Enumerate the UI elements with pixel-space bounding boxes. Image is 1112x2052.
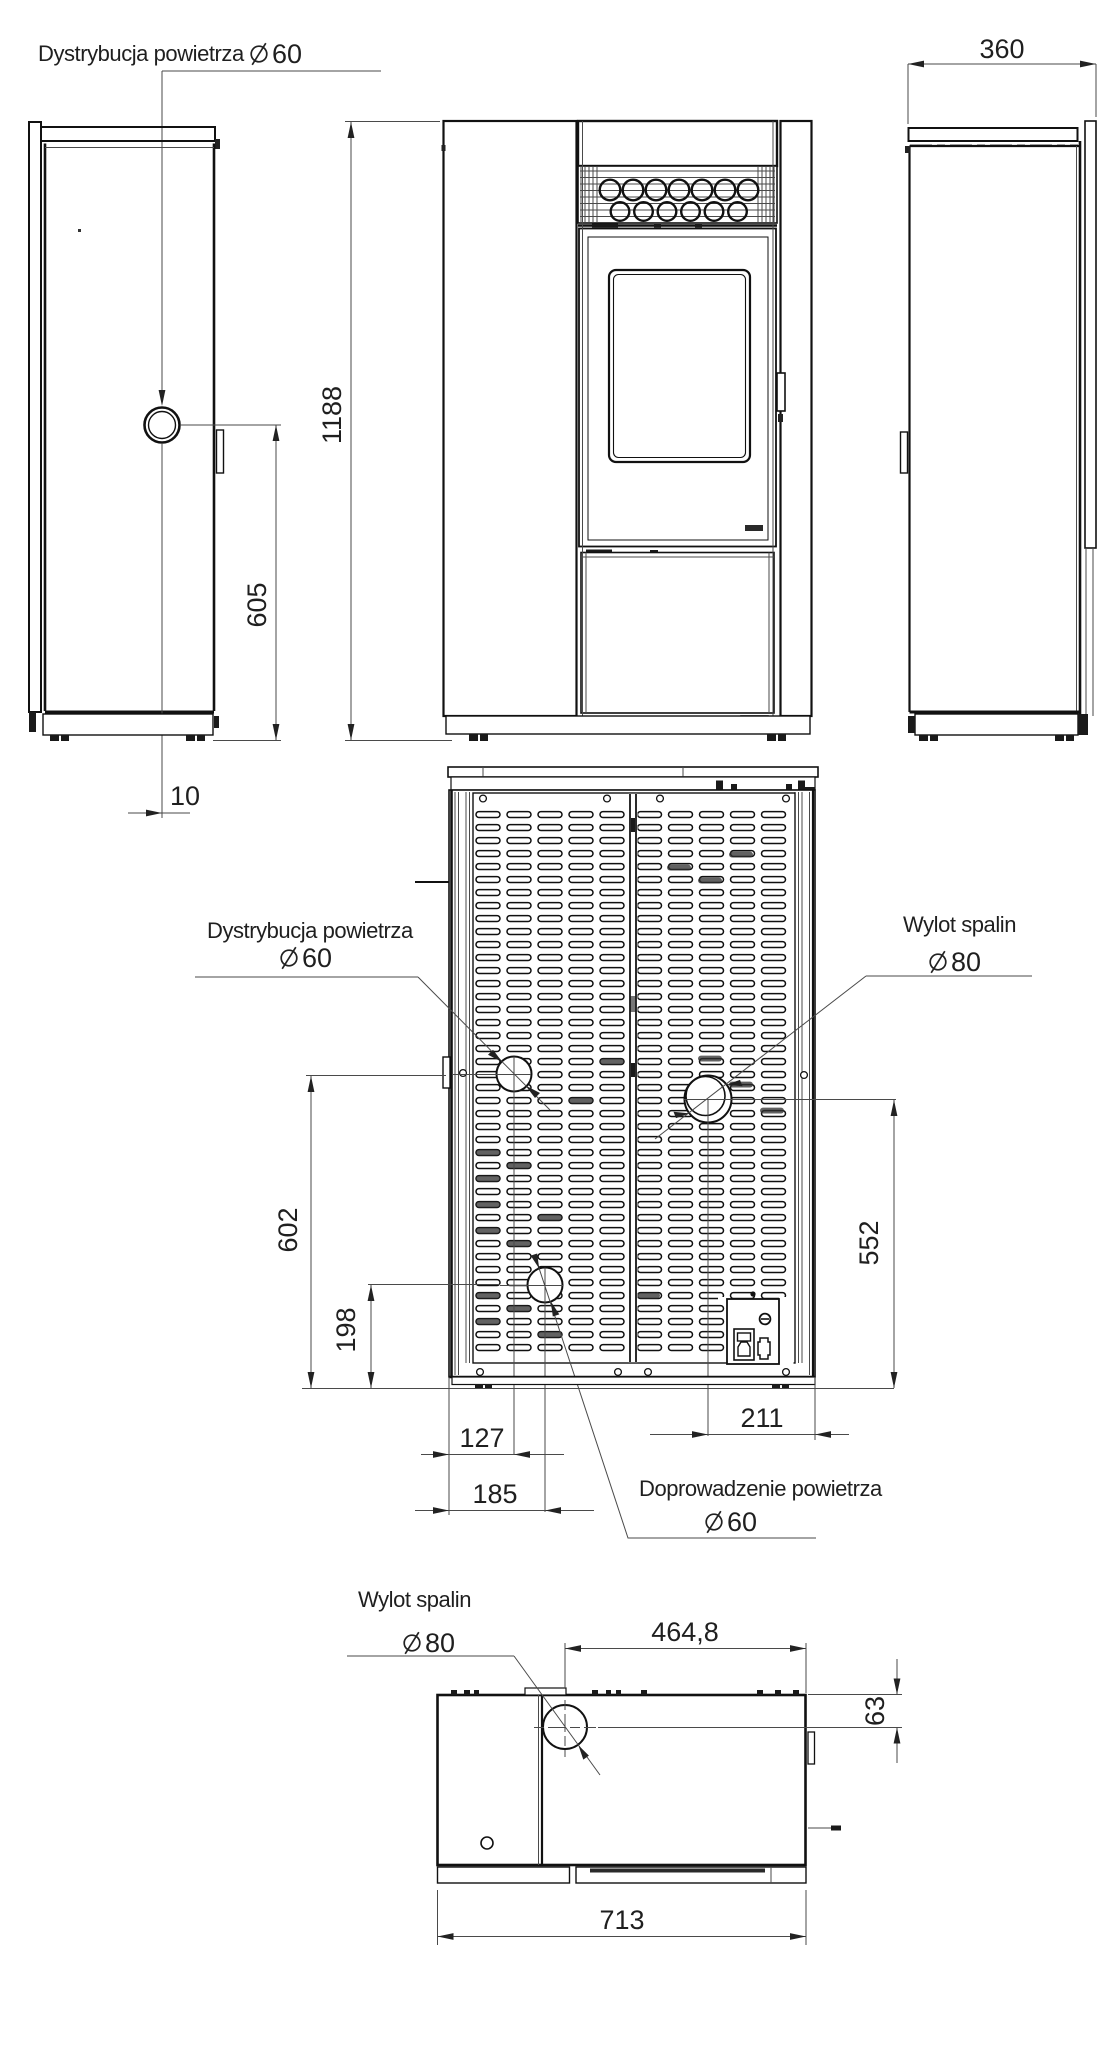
svg-text:464,8: 464,8	[651, 1617, 719, 1647]
svg-text:Dystrybucja powietrza: Dystrybucja powietrza	[38, 41, 245, 66]
svg-text:80: 80	[951, 947, 981, 977]
svg-text:10: 10	[170, 781, 200, 811]
svg-text:605: 605	[242, 582, 272, 627]
svg-text:Wylot spalin: Wylot spalin	[358, 1587, 471, 1612]
svg-text:60: 60	[302, 943, 332, 973]
svg-text:360: 360	[979, 34, 1024, 64]
svg-text:80: 80	[425, 1628, 455, 1658]
svg-text:Dystrybucja powietrza: Dystrybucja powietrza	[207, 918, 414, 943]
svg-text:552: 552	[854, 1220, 884, 1265]
svg-text:198: 198	[331, 1307, 361, 1352]
svg-text:127: 127	[459, 1423, 504, 1453]
svg-text:Doprowadzenie powietrza: Doprowadzenie powietrza	[639, 1476, 883, 1501]
svg-text:211: 211	[740, 1403, 783, 1433]
svg-text:602: 602	[273, 1207, 303, 1252]
svg-text:1188: 1188	[317, 386, 347, 444]
svg-text:713: 713	[599, 1905, 644, 1935]
svg-text:63: 63	[860, 1696, 890, 1726]
svg-text:60: 60	[272, 39, 302, 69]
svg-text:60: 60	[727, 1507, 757, 1537]
svg-text:185: 185	[472, 1479, 517, 1509]
svg-text:Wylot spalin: Wylot spalin	[903, 912, 1016, 937]
